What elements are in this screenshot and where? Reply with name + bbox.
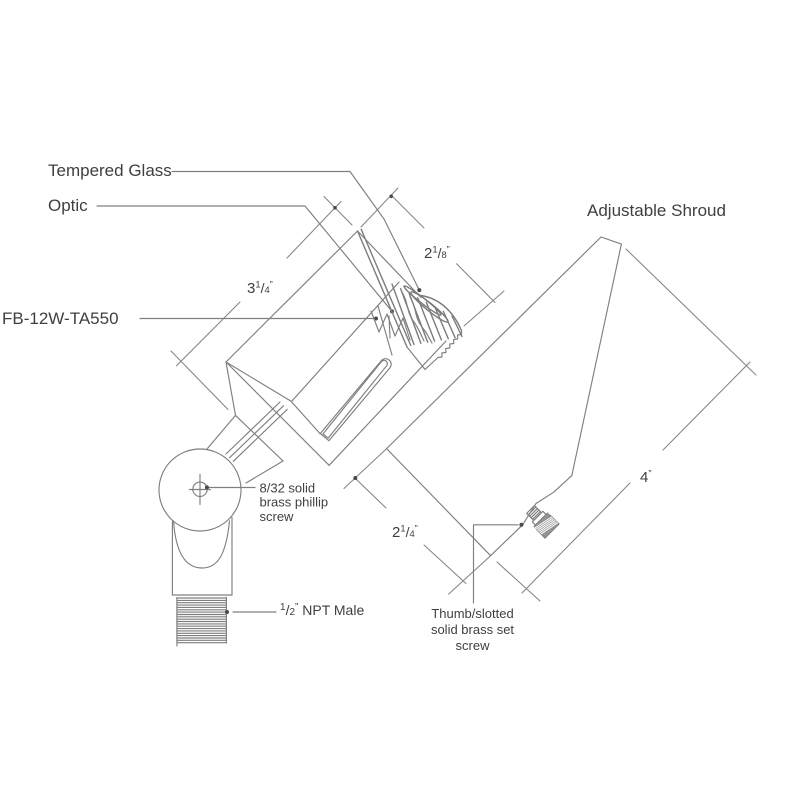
svg-text:brass phillip: brass phillip [260,495,329,510]
svg-text:screw: screw [456,638,491,653]
svg-text:Thumb/slotted: Thumb/slotted [431,606,513,621]
svg-text:4”: 4” [640,469,652,487]
svg-text:FB-12W-TA550: FB-12W-TA550 [2,309,119,328]
svg-text:1/2” NPT Male: 1/2” NPT Male [280,602,364,618]
svg-text:screw: screw [260,509,295,524]
svg-text:21/8”: 21/8” [424,244,450,263]
svg-text:Tempered Glass: Tempered Glass [48,161,172,180]
svg-text:Adjustable Shroud: Adjustable Shroud [587,201,726,220]
svg-text:31/4”: 31/4” [247,279,273,298]
svg-text:21/4”: 21/4” [392,523,418,542]
svg-text:Optic: Optic [48,196,88,215]
svg-text:8/32 solid: 8/32 solid [260,481,316,496]
svg-text:solid brass set: solid brass set [431,622,514,637]
